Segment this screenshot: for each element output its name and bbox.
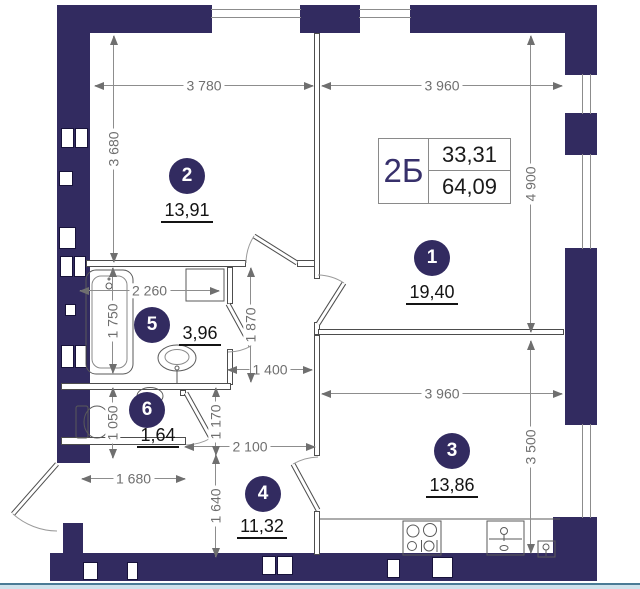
room-3-badge: 3 — [434, 433, 470, 469]
dim-label: 2 100 — [229, 439, 270, 454]
area-value: 3,96 — [179, 323, 220, 346]
door-swing-arc — [293, 457, 318, 464]
dim-label: 3 780 — [183, 78, 224, 93]
dim-label: 3 960 — [421, 386, 462, 401]
dim-hall-upper-height: 1 870 — [250, 268, 251, 382]
room-4-badge: 4 — [245, 476, 281, 512]
page-edge-line — [0, 583, 640, 589]
vent-block — [60, 256, 73, 277]
stove — [403, 521, 441, 555]
window — [565, 75, 597, 113]
dim-entry-width: 1 680 — [82, 478, 185, 479]
wall-right — [565, 5, 597, 75]
vent-block — [59, 227, 76, 249]
kitchen-sink — [487, 521, 524, 555]
dim-room2-width: 3 780 — [95, 85, 313, 86]
dim-arrow-icon — [303, 366, 313, 374]
dim-hall-lower-width: 2 100 — [185, 446, 315, 447]
dim-hall-mid-width: 1 400 — [228, 369, 312, 370]
area-value: 11,32 — [237, 516, 287, 539]
door-swing-arc — [246, 236, 254, 263]
dim-arrow-icon — [527, 544, 535, 554]
room-1-area: 19,40 — [400, 282, 464, 303]
dim-arrow-icon — [553, 390, 563, 398]
area-value: 19,40 — [406, 282, 457, 305]
partition-wall — [180, 390, 186, 396]
window-frame — [582, 154, 591, 249]
dim-label: 1 170 — [208, 401, 223, 442]
room-4-area: 11,32 — [230, 516, 294, 537]
dim-arrow-icon — [527, 35, 535, 45]
window — [212, 5, 300, 33]
partition-wall — [297, 260, 315, 267]
dim-label: 1 750 — [105, 300, 120, 341]
wall-right — [565, 113, 597, 155]
window-frame — [582, 424, 591, 518]
dim-room2-height: 3 680 — [113, 36, 114, 262]
room-3-area: 13,86 — [420, 475, 484, 496]
area-value: 13,91 — [161, 200, 212, 223]
vent-block — [59, 171, 73, 186]
unit-info-box: 2Б 33,31 64,09 — [378, 138, 511, 204]
vent-block — [61, 345, 74, 368]
dim-arrow-icon — [109, 387, 117, 397]
vent-block — [61, 128, 74, 148]
dim-label: 1 680 — [113, 471, 154, 486]
entrance-door-leaf — [13, 464, 57, 531]
living-area-value: 33,31 — [429, 139, 510, 171]
partition-wall — [227, 267, 233, 304]
door-swing-arc — [13, 514, 57, 531]
area-value: 13,86 — [426, 475, 477, 498]
dim-arrow-icon — [212, 548, 220, 558]
dim-arrow-icon — [79, 287, 89, 295]
dim-label: 2 260 — [129, 283, 170, 298]
vent-block — [75, 128, 88, 148]
wall-left-bottom — [63, 523, 83, 553]
dim-arrow-icon — [527, 340, 535, 350]
dim-kitchen-height: 3 500 — [530, 341, 531, 553]
vent-block — [75, 345, 87, 368]
dim-arrow-icon — [109, 449, 117, 459]
dim-bath-width: 2 260 — [80, 290, 219, 291]
door-leaf — [293, 457, 318, 510]
partition-wall — [314, 335, 320, 456]
vent-block — [127, 562, 138, 580]
window-frame — [359, 9, 411, 18]
dim-arrow-icon — [321, 390, 331, 398]
vent-block — [74, 256, 86, 277]
dim-arrow-icon — [247, 267, 255, 277]
dim-room1-width: 3 960 — [322, 85, 562, 86]
dim-arrow-icon — [110, 35, 118, 45]
window — [565, 425, 597, 517]
total-area-value: 64,09 — [429, 171, 510, 203]
dim-arrow-icon — [110, 253, 118, 263]
dim-arrow-icon — [94, 82, 104, 90]
vent-block — [65, 304, 76, 316]
dim-arrow-icon — [321, 82, 331, 90]
wall-top — [300, 5, 360, 33]
dim-arrow-icon — [247, 373, 255, 383]
vent-block — [262, 556, 276, 575]
window-frame — [211, 9, 301, 18]
bathroom-sink — [158, 345, 196, 383]
dim-arrow-icon — [227, 366, 237, 374]
dim-label: 1 640 — [208, 485, 223, 526]
floor-plan: 3 780 3 960 2 260 1 400 2 100 1 680 3 96… — [0, 0, 640, 589]
dim-label: 1 870 — [243, 304, 258, 345]
room-6-badge: 6 — [129, 392, 165, 428]
dim-arrow-icon — [527, 323, 535, 333]
dim-arrow-icon — [109, 364, 117, 374]
room-2-badge: 2 — [169, 158, 205, 194]
dim-wc-height: 1 050 — [112, 388, 113, 458]
dim-arrow-icon — [212, 454, 220, 464]
dim-label: 4 900 — [523, 163, 538, 204]
dim-arrow-icon — [306, 443, 316, 451]
dim-arrow-icon — [109, 267, 117, 277]
dim-label: 1 050 — [105, 402, 120, 443]
dim-label: 3 680 — [106, 128, 121, 169]
vent-block — [277, 556, 293, 575]
room-5-badge: 5 — [134, 307, 170, 343]
vent-block — [432, 557, 453, 578]
dim-room1-height: 4 900 — [530, 36, 531, 332]
partition-wall — [61, 383, 231, 390]
vent-block — [83, 562, 98, 580]
room-2-area: 13,91 — [155, 200, 219, 221]
wall-right — [565, 248, 597, 425]
window-frame — [582, 74, 591, 114]
door-leaf — [246, 236, 297, 263]
door-swing-arc — [318, 275, 344, 283]
window — [360, 5, 410, 33]
dim-arrow-icon — [553, 82, 563, 90]
partition-wall — [314, 511, 320, 555]
dim-hall-mid-height: 1 170 — [215, 388, 216, 455]
dim-arrow-icon — [212, 387, 220, 397]
door-leaf — [318, 275, 344, 324]
dim-arrow-icon — [81, 475, 91, 483]
room-6-area: 1,64 — [130, 425, 186, 446]
room-1-badge: 1 — [414, 240, 450, 276]
dim-label: 3 960 — [421, 78, 462, 93]
dim-arrow-icon — [210, 287, 220, 295]
dim-arrow-icon — [304, 82, 314, 90]
partition-wall — [314, 33, 320, 279]
room-5-area: 3,96 — [172, 323, 228, 344]
window — [565, 155, 597, 248]
dim-label: 3 500 — [523, 426, 538, 467]
dim-arrow-icon — [176, 475, 186, 483]
washing-machine — [186, 269, 224, 301]
dim-bath-height: 1 750 — [112, 268, 113, 373]
dim-kitchen-width: 3 960 — [322, 393, 562, 394]
dim-label: 1 400 — [249, 362, 290, 377]
area-value: 1,64 — [137, 425, 178, 448]
dim-hall-lower-height: 1 640 — [215, 455, 216, 557]
vent-block — [387, 559, 400, 578]
unit-label: 2Б — [379, 139, 429, 203]
